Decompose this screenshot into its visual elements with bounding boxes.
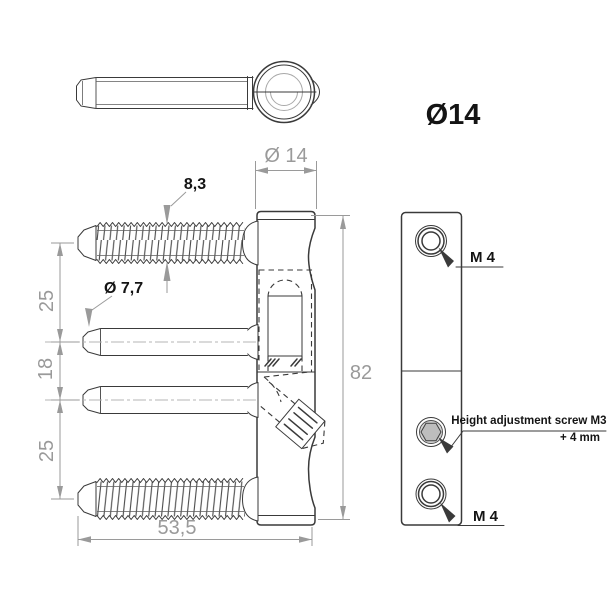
label-m4-bottom: M 4: [473, 508, 499, 525]
dim-label-spacing-top: 25: [36, 290, 58, 312]
hex-socket: [421, 423, 441, 440]
hinge-technical-drawing: Ø14: [0, 0, 610, 610]
dim-label-height: 82: [350, 362, 372, 384]
label-height-adjustment-line1: Height adjustment screw M3: [451, 415, 606, 427]
threaded-pin-bottom: [78, 477, 258, 521]
threaded-pin-top: [78, 221, 258, 265]
label-height-adjustment-line2: + 4 mm: [560, 432, 600, 444]
dim-label-length: 53,5: [158, 517, 197, 539]
technical-drawing-page: Ø14: [0, 0, 610, 610]
diameter-title-label: Ø14: [426, 99, 481, 131]
column-outline: [257, 212, 315, 526]
dim-label-thread-od: 8,3: [184, 176, 206, 193]
dim-label-spacing-bottom: 25: [36, 440, 58, 462]
leaf-plate: [402, 213, 462, 526]
dim-label-pin-od: Ø 7,7: [104, 280, 143, 297]
pin-tip: [77, 78, 97, 109]
dim-label-spacing-mid: 18: [35, 358, 57, 380]
dim-label-column-diameter: Ø 14: [264, 145, 307, 167]
label-m4-top: M 4: [470, 249, 496, 266]
